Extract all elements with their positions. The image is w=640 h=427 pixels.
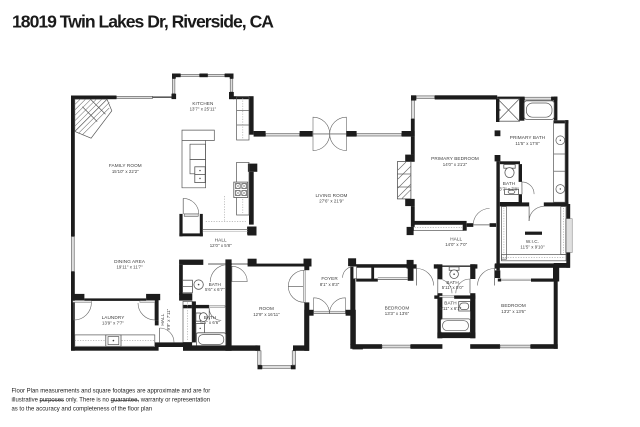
svg-text:BEDROOM: BEDROOM: [501, 303, 526, 308]
svg-text:18019 Twin Lakes Dr, Riverside: 18019 Twin Lakes Dr, Riverside, CA: [12, 12, 274, 32]
svg-text:5'6" x 6'7": 5'6" x 6'7": [205, 287, 225, 292]
svg-text:W.I.C.: W.I.C.: [526, 239, 539, 244]
svg-text:13'9" x 7'7": 13'9" x 7'7": [102, 320, 124, 325]
svg-text:5'6" x 6'6": 5'6" x 6'6": [200, 320, 220, 325]
svg-text:DINING AREA: DINING AREA: [114, 259, 146, 264]
svg-text:LIVING ROOM: LIVING ROOM: [315, 193, 347, 198]
svg-text:12'9" x 16'11": 12'9" x 16'11": [253, 312, 280, 317]
svg-text:HALL: HALL: [160, 313, 165, 325]
svg-text:PRIMARY BEDROOM: PRIMARY BEDROOM: [431, 156, 479, 161]
svg-text:5'11" x 6'1": 5'11" x 6'1": [440, 306, 462, 311]
svg-text:FAMILY ROOM: FAMILY ROOM: [109, 163, 142, 168]
svg-text:27'6" x 21'9": 27'6" x 21'9": [319, 198, 344, 203]
svg-text:9'9" x 7'11": 9'9" x 7'11": [166, 308, 171, 330]
svg-text:HALL: HALL: [215, 238, 227, 243]
svg-text:8'1" x 8'3": 8'1" x 8'3": [320, 282, 340, 287]
svg-text:11'5" x 9'10": 11'5" x 9'10": [520, 244, 545, 249]
svg-text:FOYER: FOYER: [321, 276, 338, 281]
svg-text:illustrative purposes only. Th: illustrative purposes only. There is no …: [12, 398, 211, 404]
svg-text:BEDROOM: BEDROOM: [385, 305, 410, 310]
svg-text:19'11" x 11'7": 19'11" x 11'7": [116, 265, 143, 270]
svg-text:KITCHEN: KITCHEN: [192, 101, 213, 106]
svg-text:12'0" x 5'8": 12'0" x 5'8": [210, 243, 232, 248]
svg-text:14'0" x 21'2": 14'0" x 21'2": [443, 162, 468, 167]
svg-text:13'7" x 25'11": 13'7" x 25'11": [190, 106, 217, 111]
svg-text:3'7" x 7'0": 3'7" x 7'0": [499, 186, 519, 191]
svg-text:13'3" x 13'6": 13'3" x 13'6": [385, 311, 410, 316]
svg-text:LAUNDRY: LAUNDRY: [102, 315, 125, 320]
svg-text:HALL: HALL: [450, 237, 462, 242]
svg-text:PRIMARY BATH: PRIMARY BATH: [510, 135, 546, 140]
svg-text:5'11" x 5'0": 5'11" x 5'0": [442, 285, 464, 290]
svg-text:13'2" x 13'6": 13'2" x 13'6": [501, 309, 526, 314]
svg-text:ROOM: ROOM: [259, 306, 274, 311]
svg-text:Floor Plan measurements and sq: Floor Plan measurements and square foota…: [12, 389, 211, 395]
svg-text:15'10" x 22'2": 15'10" x 22'2": [112, 169, 139, 174]
svg-text:11'5" x 17'8": 11'5" x 17'8": [515, 141, 540, 146]
svg-text:14'0" x 7'0": 14'0" x 7'0": [445, 242, 467, 247]
svg-text:as to the accuracy and complet: as to the accuracy and completeness of t…: [12, 406, 153, 412]
